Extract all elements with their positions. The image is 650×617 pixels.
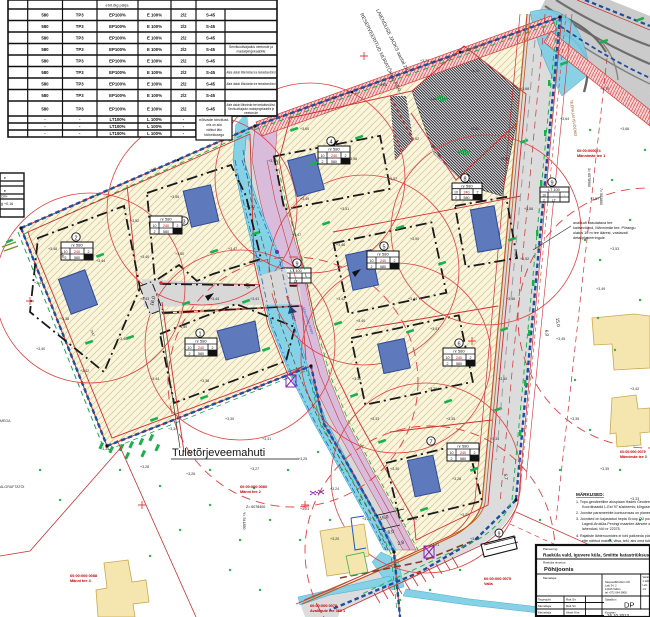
- svg-text:60:00:000:0088: 60:00:000:0088: [70, 574, 97, 578]
- svg-text:EP100%: EP100%: [109, 59, 126, 64]
- svg-text:S-45: S-45: [206, 59, 216, 64]
- svg-text:+3,34: +3,34: [168, 427, 177, 431]
- svg-text:+3,39: +3,39: [570, 417, 579, 421]
- svg-text:kaitsevöönd, Männimäe tee. Pii: kaitsevöönd, Männimäe tee. Piirangu: [573, 226, 635, 230]
- svg-text:2: 2: [88, 250, 90, 254]
- svg-text:5: 5: [382, 245, 385, 251]
- svg-text:580: 580: [41, 24, 49, 29]
- svg-text:+3,48: +3,48: [48, 247, 57, 251]
- svg-text:+3,70: +3,70: [470, 69, 479, 73]
- svg-text:Männi tee 4: Männi tee 4: [70, 579, 92, 583]
- svg-text:10: 10: [542, 193, 546, 197]
- svg-text:+3,28: +3,28: [140, 465, 149, 469]
- svg-text:+3,45: +3,45: [34, 281, 43, 285]
- svg-text:+3,50: +3,50: [175, 252, 184, 256]
- svg-text:+3,42: +3,42: [80, 369, 89, 373]
- svg-text:+3,40: +3,40: [498, 377, 507, 381]
- svg-text:S-45: S-45: [206, 82, 216, 87]
- svg-text:+3,60: +3,60: [500, 157, 509, 161]
- svg-text:240: 240: [163, 224, 169, 228]
- svg-text:+3,35: +3,35: [446, 417, 455, 421]
- svg-text:nr 580: nr 580: [328, 147, 340, 152]
- svg-text:Menetleja: Menetleja: [538, 604, 551, 608]
- svg-text:E 100%: E 100%: [147, 13, 162, 18]
- svg-text:240: 240: [331, 154, 337, 158]
- svg-text:2: 2: [345, 154, 347, 158]
- svg-text:madalpingekaablile: madalpingekaablile: [236, 50, 265, 54]
- svg-text:+3,26: +3,26: [186, 472, 195, 476]
- svg-text:S-45: S-45: [206, 47, 216, 52]
- svg-text:+3,22: +3,22: [362, 517, 371, 521]
- svg-text:+3,36: +3,36: [352, 377, 361, 381]
- svg-text:240: 240: [460, 451, 466, 455]
- svg-text:EP100%: EP100%: [109, 36, 126, 41]
- svg-text:TP3: TP3: [76, 24, 84, 29]
- svg-text:Planeering:: Planeering:: [543, 547, 558, 551]
- svg-text:580: 580: [41, 47, 49, 52]
- svg-text:E 100%: E 100%: [147, 70, 162, 75]
- svg-text:+3,44: +3,44: [210, 297, 219, 301]
- svg-text:TP3: TP3: [76, 13, 84, 18]
- svg-text:+3,24: +3,24: [330, 487, 339, 491]
- svg-text:L 100%: L 100%: [147, 131, 162, 136]
- svg-text:TP3: TP3: [76, 93, 84, 98]
- svg-text:Põhijoonis: Põhijoonis: [544, 567, 574, 573]
- svg-text:ALGRAFTATÖI: ALGRAFTATÖI: [0, 485, 24, 489]
- svg-text:+3,51: +3,51: [340, 207, 349, 211]
- svg-text:7= 581800: 7= 581800: [599, 188, 603, 205]
- svg-text:Y= 541850: Y= 541850: [242, 512, 246, 530]
- svg-text:2: 2: [189, 352, 191, 356]
- svg-text:lahendusi, töö nr 22375.: lahendusi, töö nr 22375.: [582, 527, 621, 531]
- svg-text:+3,55: +3,55: [170, 195, 179, 199]
- svg-text:-: -: [564, 193, 565, 197]
- svg-text:2: 2: [447, 362, 449, 366]
- svg-text:Alale ulatub Männimäe tee tee: Alale ulatub Männimäe tee teekaitsevöönd: [227, 82, 276, 86]
- svg-text:2/2: 2/2: [181, 70, 188, 75]
- svg-text:mis on alla: mis on alla: [206, 123, 221, 127]
- svg-text:2: 2: [394, 259, 396, 263]
- svg-text:+3,47: +3,47: [292, 233, 301, 237]
- svg-text:2: 2: [322, 160, 324, 164]
- svg-text:+3,52: +3,52: [520, 257, 529, 261]
- svg-text:nõlvade kindlust.: nõlvade kindlust.: [199, 118, 229, 122]
- svg-text:S-45: S-45: [206, 107, 216, 112]
- svg-text:E 100%: E 100%: [147, 93, 162, 98]
- svg-text:Staadium: Staadium: [605, 598, 617, 602]
- svg-text:16.10.2013: 16.10.2013: [607, 613, 630, 617]
- svg-text:2. Joonise parameetrite kont: 2. Joonise parameetrite kontuurosas on p…: [576, 511, 650, 515]
- svg-text:EP100%: EP100%: [109, 107, 126, 112]
- svg-text:+3,65: +3,65: [470, 127, 479, 131]
- svg-text:♦: ♦: [4, 176, 6, 180]
- svg-text:Skepast&Puhkim OÜ: Skepast&Puhkim OÜ: [605, 580, 630, 584]
- svg-text:+3,30: +3,30: [225, 417, 234, 421]
- svg-text:TP3: TP3: [76, 59, 84, 64]
- svg-text:9: 9: [295, 262, 298, 268]
- svg-text:2/2: 2/2: [181, 82, 188, 87]
- svg-text:+3,53: +3,53: [610, 247, 619, 251]
- svg-text:avalikult kasutatava tee: avalikult kasutatava tee: [573, 221, 612, 225]
- svg-text:LT100%: LT100%: [110, 124, 126, 129]
- svg-text:4: 4: [329, 140, 332, 146]
- svg-text:EP100%: EP100%: [109, 82, 126, 87]
- svg-text:+3,72: +3,72: [420, 59, 429, 63]
- svg-text:9: 9: [550, 181, 553, 187]
- svg-text:+3,26: +3,26: [408, 517, 417, 521]
- svg-text:580: 580: [74, 256, 80, 260]
- svg-text:ette nähtud maksa, vitsa, teki: ette nähtud maksa, vitsa, teki, aks oma …: [582, 539, 650, 543]
- svg-text:+3,27: +3,27: [460, 513, 469, 517]
- svg-text:-: -: [295, 274, 296, 278]
- svg-text:60:00:000:0079: 60:00:000:0079: [620, 450, 646, 454]
- svg-text:7: 7: [429, 440, 432, 446]
- svg-text:+3,33: +3,33: [370, 417, 379, 421]
- svg-text:Valla: Valla: [484, 582, 494, 586]
- svg-text:1/1: 1/1: [643, 588, 647, 591]
- svg-text:+3,30: +3,30: [390, 467, 399, 471]
- svg-text:Rait Sir: Rait Sir: [566, 598, 576, 602]
- svg-text:60:00:000:0075: 60:00:000:0075: [484, 577, 511, 581]
- svg-text:TP3: TP3: [76, 107, 84, 112]
- svg-text:+3,50: +3,50: [410, 237, 419, 241]
- svg-text:MEGA: MEGA: [0, 419, 11, 423]
- svg-text:TP3: TP3: [76, 36, 84, 41]
- svg-text:240: 240: [464, 190, 470, 194]
- svg-text:+3,44: +3,44: [150, 377, 159, 381]
- svg-text:2: 2: [212, 346, 214, 350]
- svg-text:TP3: TP3: [76, 70, 84, 75]
- svg-text:Raeküla vald, Iguvere küla, Sm: Raeküla vald, Iguvere küla, Smiitte kata…: [543, 553, 650, 558]
- svg-text:580: 580: [41, 93, 49, 98]
- svg-text:6,0: 6,0: [544, 330, 550, 337]
- svg-text:2/2: 2/2: [181, 107, 188, 112]
- svg-text:DP: DP: [624, 601, 634, 610]
- svg-text:Menetleja:: Menetleja:: [543, 576, 557, 580]
- svg-text:L 100%: L 100%: [147, 124, 162, 129]
- svg-text:veetorule: veetorule: [244, 111, 258, 115]
- svg-text:580: 580: [464, 196, 470, 200]
- svg-text:+3,43: +3,43: [140, 297, 149, 301]
- svg-text:S-45: S-45: [206, 93, 216, 98]
- svg-text:580: 580: [460, 457, 466, 461]
- svg-text:2: 2: [455, 196, 457, 200]
- svg-text:+3,45: +3,45: [556, 337, 565, 341]
- svg-text:8: 8: [463, 177, 466, 183]
- svg-text:12915 Tallinn: 12915 Tallinn: [605, 587, 621, 591]
- svg-text:Lagedi-Aruküla-Peningi maantee: Lagedi-Aruküla-Peningi maantee äärsete a…: [582, 522, 650, 526]
- svg-text:hööveldusega: hööveldusega: [204, 133, 224, 137]
- svg-text:nr 580: nr 580: [457, 444, 469, 449]
- svg-text:+3,41: +3,41: [430, 327, 439, 331]
- svg-text:nr 580: nr 580: [461, 184, 473, 189]
- svg-text:240: 240: [198, 346, 204, 350]
- svg-text:EP100%: EP100%: [109, 47, 126, 52]
- svg-text:2: 2: [74, 236, 77, 242]
- svg-text:2: 2: [154, 230, 156, 234]
- svg-text:E 100%: E 100%: [147, 36, 162, 41]
- svg-text:+3,49: +3,49: [596, 287, 605, 291]
- svg-text:E 100%: E 100%: [147, 47, 162, 52]
- svg-text:580: 580: [41, 59, 49, 64]
- svg-text:+3,62: +3,62: [410, 137, 419, 141]
- svg-text:EP100%: EP100%: [109, 24, 126, 29]
- svg-text:+3,42: +3,42: [336, 297, 345, 301]
- svg-text:2/2: 2/2: [181, 36, 188, 41]
- svg-text:nähtud läbi: nähtud läbi: [206, 128, 222, 132]
- svg-text:+3,41: +3,41: [250, 297, 259, 301]
- svg-text:LT 100: LT 100: [548, 188, 559, 192]
- svg-text:240: 240: [456, 356, 462, 360]
- svg-text:10: 10: [450, 451, 454, 455]
- svg-text:2: 2: [371, 265, 373, 269]
- svg-text:+3,38: +3,38: [60, 317, 69, 321]
- svg-text:tel +372 664 5808: tel +372 664 5808: [605, 591, 627, 595]
- svg-text:+3,44: +3,44: [96, 259, 105, 263]
- svg-text:S-45: S-45: [206, 13, 216, 18]
- svg-text:2: 2: [474, 451, 476, 455]
- svg-text:+3,60: +3,60: [300, 127, 309, 131]
- svg-text:+3,40: +3,40: [140, 255, 149, 259]
- svg-text:Tuletõrjeveemahuti: Tuletõrjeveemahuti: [172, 447, 265, 459]
- svg-text:nr 580: nr 580: [377, 252, 389, 257]
- svg-text:Aksel Kirs: Aksel Kirs: [566, 611, 580, 615]
- svg-text:+3,35: +3,35: [252, 387, 261, 391]
- svg-text:580: 580: [331, 160, 337, 164]
- svg-text:+3,44: +3,44: [408, 297, 417, 301]
- svg-text:1:1000: 1:1000: [643, 580, 650, 583]
- svg-text:+3,66: +3,66: [428, 97, 437, 101]
- svg-text:10: 10: [153, 224, 157, 228]
- svg-text:S-45: S-45: [206, 24, 216, 29]
- svg-text:10: 10: [321, 154, 325, 158]
- svg-text:+3,38: +3,38: [200, 379, 209, 383]
- svg-text:2: 2: [470, 356, 472, 360]
- svg-text:580: 580: [41, 13, 49, 18]
- svg-text:Rait Sir: Rait Sir: [566, 604, 576, 608]
- svg-text:+3,52: +3,52: [130, 219, 139, 223]
- svg-text:+3,40: +3,40: [36, 347, 45, 351]
- svg-text:10: 10: [370, 259, 374, 263]
- svg-text:4. Rajatiste lähteruumides e: 4. Rajatiste lähteruumides ei tohi paikn…: [576, 534, 650, 538]
- svg-text:E 100%: E 100%: [147, 107, 162, 112]
- svg-text:nr 580: nr 580: [160, 217, 172, 222]
- svg-text:2: 2: [477, 190, 479, 194]
- svg-text:MÄRKUSED:: MÄRKUSED:: [576, 491, 605, 497]
- svg-text:Menetleja: Menetleja: [538, 611, 551, 615]
- svg-text:EP100%: EP100%: [109, 13, 126, 18]
- svg-text:10: 10: [446, 356, 450, 360]
- svg-text:580: 580: [41, 107, 49, 112]
- svg-text:+3,52: +3,52: [246, 205, 255, 209]
- svg-text:Raeküla nimetus:: Raeküla nimetus:: [543, 561, 566, 565]
- svg-text:Männimäe tee 3: Männimäe tee 3: [620, 455, 647, 459]
- svg-text:+3,46: +3,46: [506, 297, 515, 301]
- svg-text:Männi tee 2: Männi tee 2: [240, 490, 261, 494]
- svg-text:LT 100: LT 100: [290, 269, 301, 273]
- svg-text:+3,58: +3,58: [348, 157, 357, 161]
- svg-text:3: 3: [182, 220, 185, 226]
- svg-text:ehit.õig pärja: ehit.õig pärja: [106, 3, 130, 8]
- svg-text:Z= 6078400: Z= 6078400: [246, 505, 265, 509]
- svg-text:LT100%: LT100%: [110, 117, 126, 122]
- svg-text:2/2: 2/2: [181, 59, 188, 64]
- svg-text:+3,57: +3,57: [590, 197, 599, 201]
- svg-text:10: 10: [188, 346, 192, 350]
- svg-text:580: 580: [41, 36, 49, 41]
- svg-text:+3,23: +3,23: [300, 507, 309, 511]
- svg-text:+3,57: +3,57: [388, 177, 397, 181]
- svg-text:+3,55: +3,55: [268, 159, 277, 163]
- svg-text:+3,28: +3,28: [452, 477, 461, 481]
- svg-text:+3,58: +3,58: [524, 207, 533, 211]
- svg-text:Laki 34, 2: Laki 34, 2: [605, 584, 617, 588]
- svg-text:EP100%: EP100%: [109, 70, 126, 75]
- svg-text:EP100%: EP100%: [109, 93, 126, 98]
- svg-text:E 100%: E 100%: [147, 59, 162, 64]
- svg-text:+3,20: +3,20: [330, 537, 339, 541]
- svg-text:580: 580: [198, 352, 204, 356]
- svg-text:580: 580: [41, 70, 49, 75]
- svg-text:S-45: S-45: [206, 70, 216, 75]
- svg-text:E 100%: E 100%: [147, 24, 162, 29]
- svg-text:TP3: TP3: [76, 47, 84, 52]
- svg-text:240: 240: [380, 259, 386, 263]
- svg-text:60:00:000:0078: 60:00:000:0078: [310, 604, 337, 608]
- svg-text:Avaliigute tee 366 1: Avaliigute tee 366 1: [310, 609, 345, 613]
- svg-text:LT100%: LT100%: [110, 131, 126, 136]
- svg-text:Alale ulatub Männimäe tee tee: Alale ulatub Männimäe tee teekaitsevöönd: [227, 71, 276, 75]
- svg-text:9: 9: [498, 532, 501, 538]
- svg-text:+3,49: +3,49: [300, 197, 309, 201]
- svg-text:580: 580: [41, 82, 49, 87]
- svg-text:2/2: 2/2: [181, 13, 188, 18]
- svg-text:ulatus 10 m tee äärest, vastav: ulatus 10 m tee äärest, vastavalt: [573, 231, 629, 235]
- svg-text:60:00:000:0080: 60:00:000:0080: [240, 485, 267, 489]
- svg-text:60:00:000074: 60:00:000074: [577, 149, 602, 153]
- svg-text:2: 2: [451, 457, 453, 461]
- svg-text:+3,27: +3,27: [250, 467, 259, 471]
- svg-text:+3,25: +3,25: [298, 457, 307, 461]
- svg-text:ḡ +0,16: ḡ +0,16: [1, 202, 13, 206]
- svg-text:2/2: 2/2: [181, 24, 188, 29]
- svg-text:nr 580: nr 580: [453, 349, 465, 354]
- svg-text:+3,68: +3,68: [520, 87, 529, 91]
- svg-text:+3,22: +3,22: [470, 537, 479, 541]
- svg-text:+3,46: +3,46: [118, 337, 127, 341]
- svg-text:TP3: TP3: [76, 82, 84, 87]
- svg-text:+3,31: +3,31: [262, 437, 271, 441]
- svg-text:+3,21: +3,21: [430, 543, 439, 547]
- svg-text:-: -: [553, 193, 554, 197]
- svg-text:1. Topo-geodeetiline aluspla: 1. Topo-geodeetiline alusplaan Hades Geo…: [576, 500, 650, 504]
- svg-text:2/2: 2/2: [181, 47, 188, 52]
- svg-text:580: 580: [380, 265, 386, 269]
- svg-text:580: 580: [456, 362, 462, 366]
- svg-text:+3,64: +3,64: [560, 117, 569, 121]
- svg-text:2: 2: [177, 224, 179, 228]
- svg-text:Koordinaadid L-Est`97 süsteemi: Koordinaadid L-Est`97 süsteemis; kõrguse…: [582, 505, 650, 509]
- svg-text:+3,47: +3,47: [228, 247, 237, 251]
- svg-text:Variant: Variant: [643, 576, 650, 579]
- svg-text:Männimäe tee 1: Männimäe tee 1: [577, 154, 605, 158]
- svg-text:nr 580: nr 580: [71, 243, 83, 248]
- svg-text:Cm²: Cm²: [1, 195, 8, 199]
- svg-text:2: 2: [543, 198, 545, 202]
- svg-text:+3,70: +3,70: [600, 87, 609, 91]
- svg-text:+3,40: +3,40: [356, 319, 365, 323]
- svg-text:3= 6578900: 3= 6578900: [587, 168, 591, 187]
- svg-text:+3,35: +3,35: [600, 467, 609, 471]
- svg-text:E 100%: E 100%: [147, 82, 162, 87]
- svg-text:♦: ♦: [4, 189, 6, 193]
- svg-text:+3,66: +3,66: [620, 127, 629, 131]
- svg-text:+3,42: +3,42: [630, 387, 639, 391]
- svg-text:nr 580: nr 580: [195, 339, 207, 344]
- svg-text:S-45: S-45: [206, 36, 216, 41]
- svg-text:detailplaneeringule: detailplaneeringule: [573, 236, 605, 240]
- svg-text:10: 10: [454, 190, 458, 194]
- svg-text:3. Joonised on kajastatud he: 3. Joonised on kajastatud hepta Group OÜ…: [576, 517, 650, 521]
- svg-text:L 100%: L 100%: [147, 117, 162, 122]
- svg-text:6: 6: [457, 342, 460, 348]
- svg-text:240: 240: [74, 250, 80, 254]
- svg-text:2/2: 2/2: [181, 93, 188, 98]
- svg-text:Leht: Leht: [643, 584, 648, 587]
- svg-text:+3,46: +3,46: [336, 243, 345, 247]
- svg-text:580: 580: [163, 230, 169, 234]
- svg-text:Tegevjuht: Tegevjuht: [538, 598, 551, 602]
- svg-text:LT: LT: [552, 198, 556, 202]
- svg-text:Servituudivajadus veetorule ja: Servituudivajadus veetorule ja: [229, 45, 273, 49]
- svg-text:+3,38: +3,38: [428, 387, 437, 391]
- svg-text:+3,40: +3,40: [178, 325, 187, 329]
- svg-text:+3,68: +3,68: [378, 83, 387, 87]
- svg-text:1: 1: [198, 332, 201, 338]
